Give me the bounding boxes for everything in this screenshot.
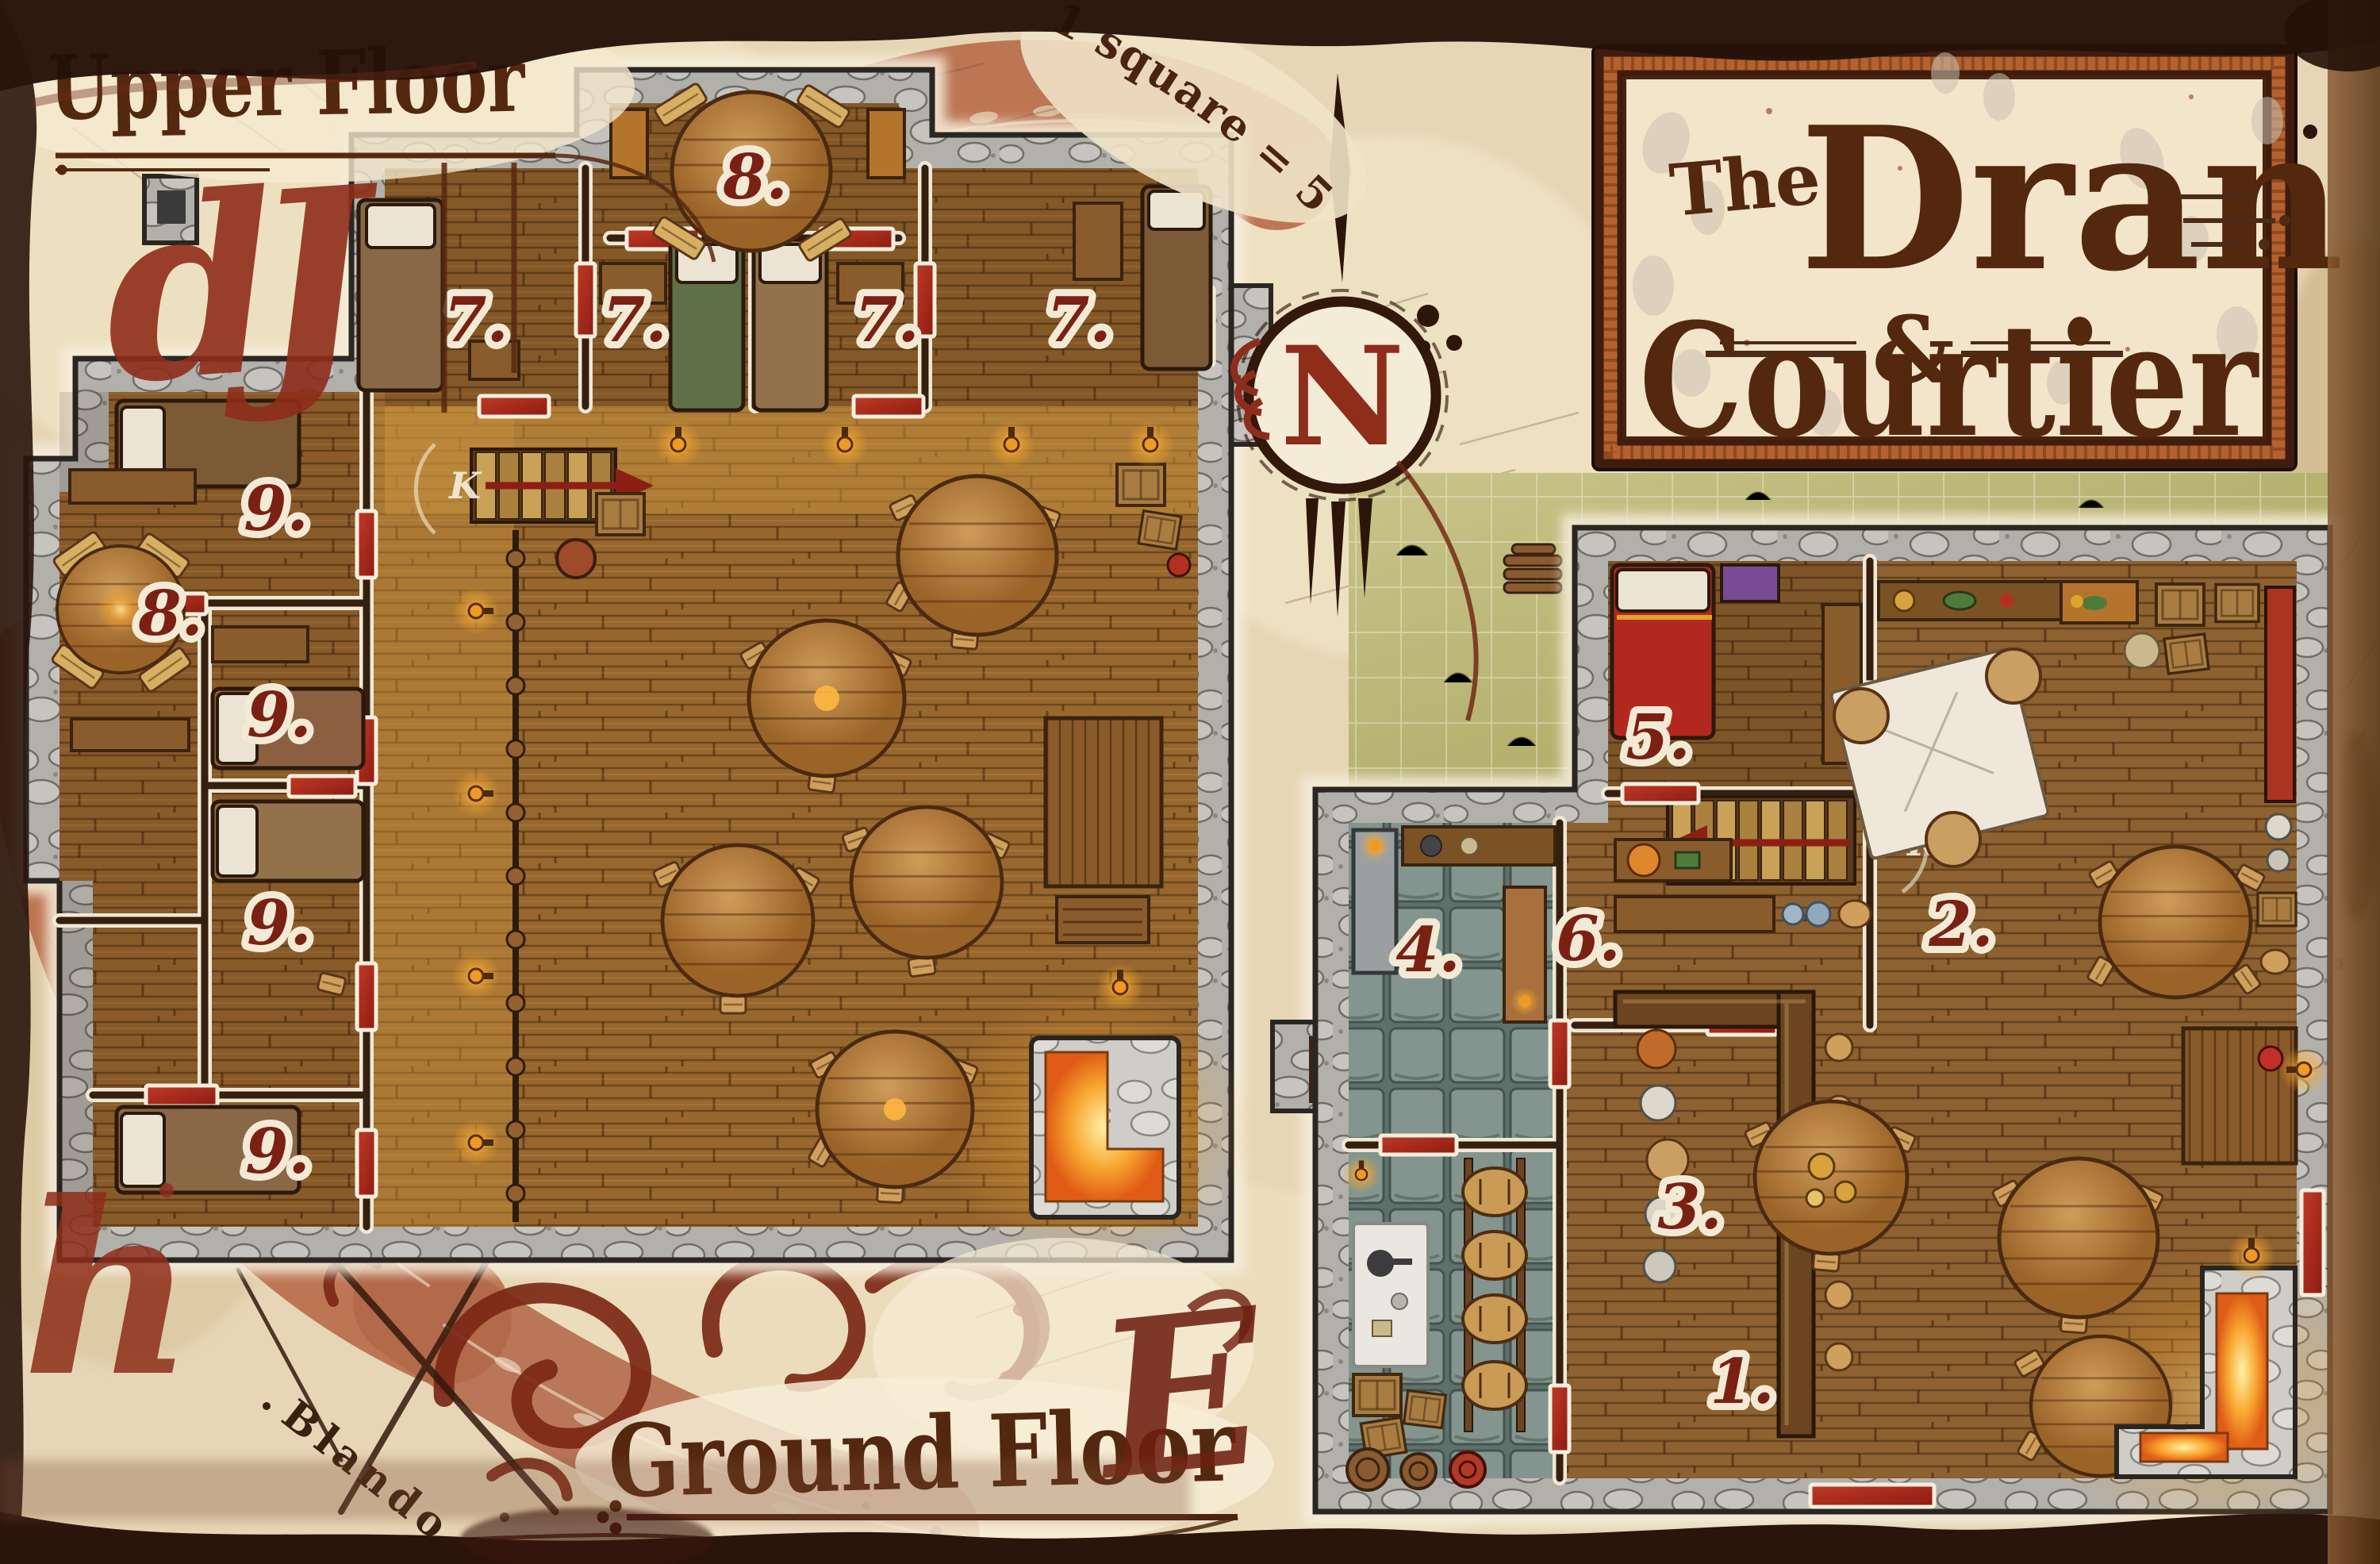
room-number: 9.	[247, 887, 311, 959]
hall-crate-ne	[1117, 464, 1165, 505]
room-number: 1.	[1710, 1346, 1774, 1418]
title-card: The Dran & Courtier	[1593, 46, 2344, 472]
wood-pile	[1504, 544, 1561, 593]
hall-crate	[597, 494, 644, 535]
title-word-dran: Dran	[1799, 84, 2344, 315]
room-number: 4.	[1395, 914, 1460, 986]
room-number: 8.	[137, 578, 202, 650]
room-number: 6.	[1556, 903, 1620, 975]
title-word-courtier: Courtier	[1639, 290, 2259, 472]
room-number: 9.	[244, 473, 308, 545]
prep-table	[1353, 1224, 1428, 1366]
hall-crate-ne2	[1138, 511, 1181, 550]
map-canvas: K	[0, 0, 2380, 1564]
upper-stair-rune: K	[447, 464, 482, 507]
room-number: 7.	[443, 284, 508, 356]
hall-barrel	[557, 540, 595, 578]
green-box	[1676, 852, 1699, 868]
meat-platter	[2259, 1047, 2282, 1070]
storage-sconce	[1342, 1155, 1380, 1193]
red-bench	[2266, 587, 2294, 801]
upper-fireplace	[1031, 1038, 1179, 1217]
room-number: 9.	[247, 679, 311, 751]
platter	[2125, 633, 2159, 668]
room-number: 3.	[1657, 1171, 1722, 1243]
night-stand	[1722, 565, 1779, 601]
room-number: 8.	[722, 141, 787, 213]
red-pot	[1168, 554, 1190, 576]
wall-sconce	[2280, 1046, 2328, 1093]
tavern-battle-map: K	[0, 0, 2380, 1564]
room-number: 7.	[854, 284, 919, 356]
barrel-rack	[1463, 1159, 1526, 1431]
shield-plaque	[1628, 844, 1660, 876]
room-number: 7.	[1046, 284, 1111, 356]
room-number: 9.	[245, 1116, 309, 1188]
room-number: 5.	[1626, 701, 1690, 774]
compass-north-letter: N	[1280, 316, 1404, 477]
room-number: 7.	[602, 284, 666, 356]
hall-long-table	[1046, 718, 1161, 943]
west-corridor-strip	[368, 406, 514, 1227]
room-number: 2.	[1928, 889, 1993, 961]
